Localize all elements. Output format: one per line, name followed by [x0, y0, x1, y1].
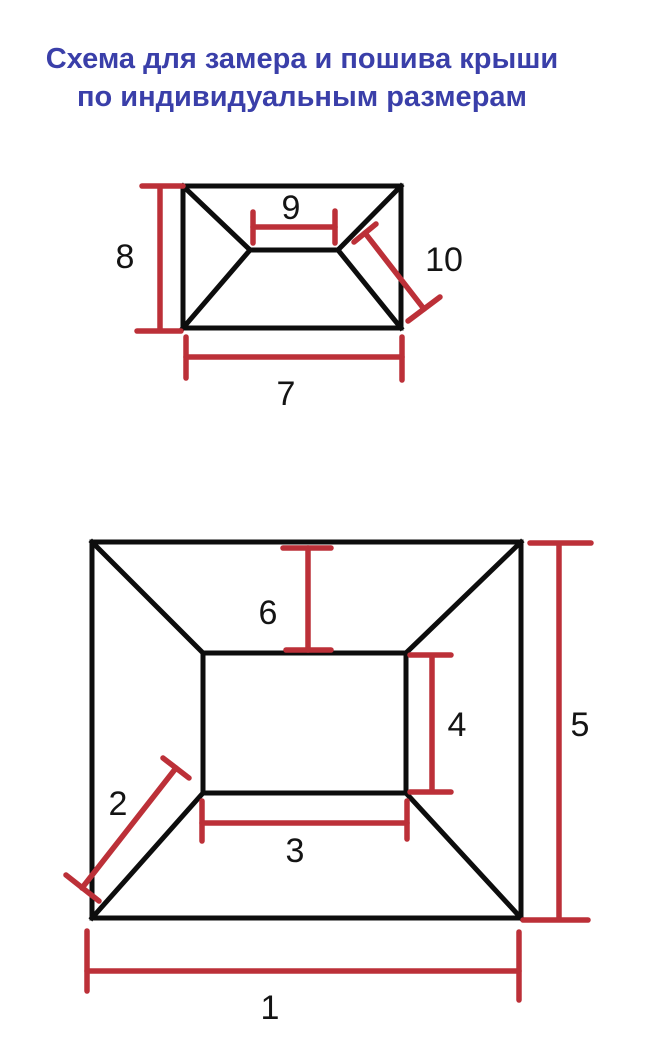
- dim-ridge-9: 9: [253, 189, 335, 243]
- dim-slope-height-6: 6: [259, 548, 331, 650]
- dim-top-width-3: 3: [202, 801, 407, 870]
- dim-label-3: 3: [286, 832, 305, 870]
- roof-measurement-scheme: 8 9 7 10: [0, 0, 646, 1047]
- dim-base-width-1: 1: [87, 931, 519, 1027]
- dim-label-9: 9: [282, 189, 301, 227]
- dim-label-2: 2: [109, 785, 128, 823]
- dim-label-5: 5: [571, 706, 590, 744]
- dim-hip-10: 10: [354, 224, 463, 321]
- hip-edge: [338, 250, 401, 328]
- hip-edge: [406, 542, 521, 653]
- dim-label-10: 10: [425, 241, 463, 279]
- dim-label-6: 6: [259, 594, 278, 632]
- dim-top-height-4: 4: [410, 655, 466, 792]
- dimension-cap: [408, 297, 440, 321]
- dim-label-7: 7: [277, 375, 296, 413]
- hip-edge: [92, 542, 203, 653]
- hip-edge: [183, 250, 250, 328]
- bottom-diagram: 6 4 3 2: [66, 542, 591, 1027]
- roof-top-rect: [203, 653, 406, 793]
- hip-edge: [406, 793, 521, 918]
- page: Схема для замера и пошива крыши по индив…: [0, 0, 646, 1047]
- dimension-line: [82, 768, 176, 888]
- top-diagram: 8 9 7 10: [116, 186, 463, 413]
- dim-base-height-5: 5: [523, 543, 591, 920]
- hip-edge: [183, 186, 250, 250]
- dimension-cap: [163, 758, 189, 778]
- dim-label-4: 4: [448, 706, 467, 744]
- dim-side-height-8: 8: [116, 186, 183, 331]
- dim-label-8: 8: [116, 238, 135, 276]
- dim-label-1: 1: [261, 989, 280, 1027]
- dim-base-width-7: 7: [186, 337, 402, 413]
